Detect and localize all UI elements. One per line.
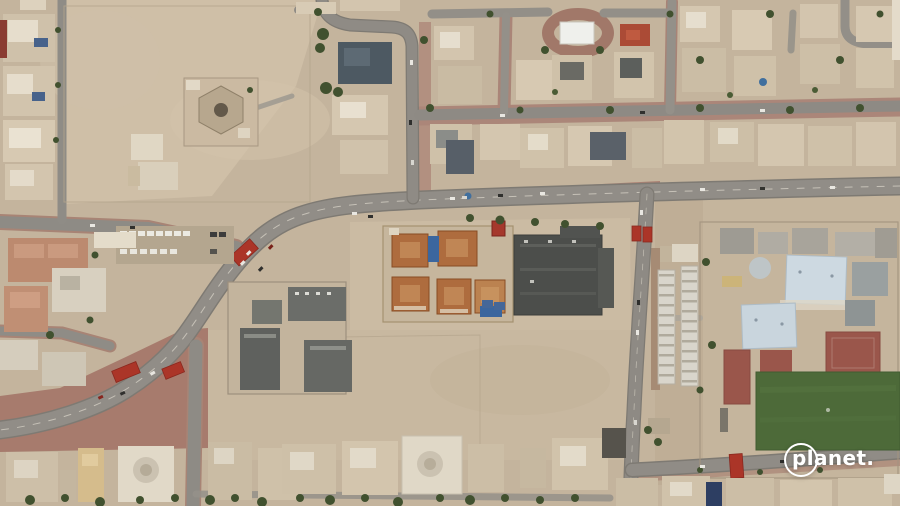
planet-logo: planet.	[784, 443, 884, 485]
planet-logo-text: planet.	[792, 446, 874, 470]
satellite-screenshot: planet.	[0, 0, 900, 506]
satellite-image	[0, 0, 900, 506]
